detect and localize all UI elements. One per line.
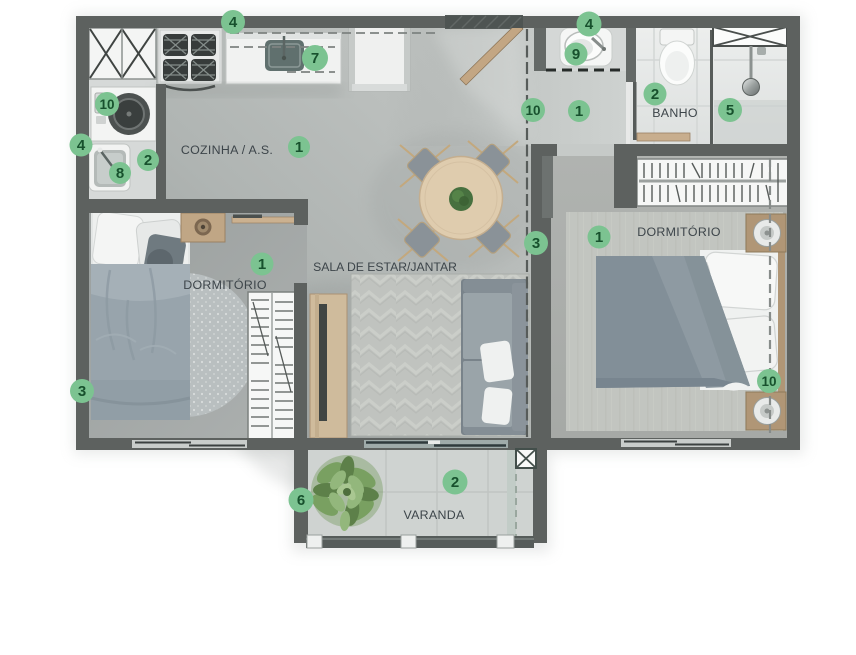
svg-text:VARANDA: VARANDA [403, 508, 465, 522]
svg-text:2: 2 [451, 474, 459, 491]
svg-text:BANHO: BANHO [652, 106, 698, 120]
svg-text:2: 2 [144, 152, 152, 169]
svg-text:4: 4 [585, 16, 594, 33]
svg-text:3: 3 [532, 235, 540, 252]
svg-text:SALA DE ESTAR/JANTAR: SALA DE ESTAR/JANTAR [313, 260, 457, 274]
svg-text:10: 10 [761, 374, 776, 389]
svg-text:1: 1 [295, 139, 303, 156]
svg-text:DORMITÓRIO: DORMITÓRIO [637, 224, 721, 239]
svg-text:10: 10 [525, 103, 540, 118]
svg-text:COZINHA / A.S.: COZINHA / A.S. [181, 143, 273, 157]
svg-text:2: 2 [651, 86, 659, 103]
svg-text:3: 3 [78, 383, 86, 400]
svg-text:1: 1 [258, 256, 266, 273]
svg-text:9: 9 [572, 46, 580, 63]
svg-text:8: 8 [116, 165, 124, 182]
svg-text:7: 7 [311, 50, 319, 67]
svg-text:4: 4 [229, 14, 238, 31]
svg-text:10: 10 [99, 97, 114, 112]
svg-text:1: 1 [575, 103, 583, 120]
svg-text:DORMITÓRIO: DORMITÓRIO [183, 277, 267, 292]
svg-text:4: 4 [77, 137, 86, 154]
svg-text:5: 5 [726, 102, 734, 119]
svg-text:6: 6 [297, 492, 305, 509]
svg-text:1: 1 [595, 229, 603, 246]
